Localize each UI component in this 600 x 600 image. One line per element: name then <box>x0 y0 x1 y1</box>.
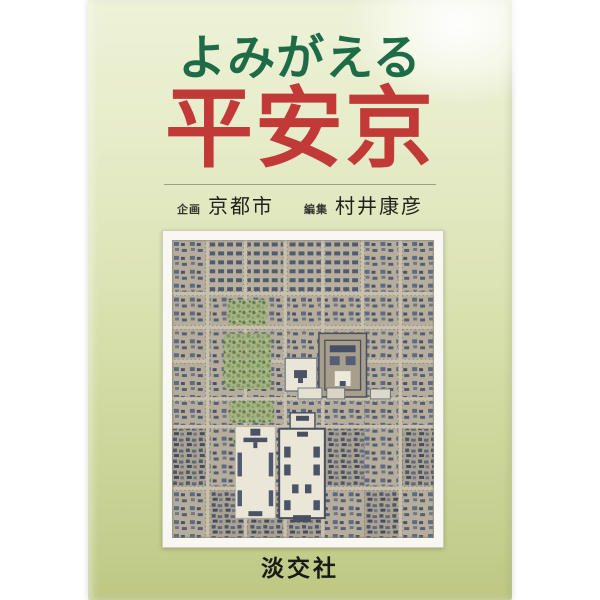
title-divider-rule <box>164 184 436 185</box>
map-burakuin-white-compound <box>236 427 276 518</box>
credits-line: 企画京都市 編集村井康彦 <box>88 190 512 219</box>
credit-name-planning: 京都市 <box>208 196 274 218</box>
title-line2-kanji: 平安京 <box>88 84 512 177</box>
title-line1-kana: よみがえる <box>88 33 512 86</box>
heiankyo-model-aerial-photo <box>172 240 434 538</box>
publisher-name: 淡交社 <box>88 549 512 583</box>
credit-planning: 企画京都市 <box>177 190 274 219</box>
map-white-halls-row <box>298 388 390 399</box>
book-cover: よみがえる 平安京 企画京都市 編集村井康彦 <box>88 0 512 600</box>
credit-role-editing: 編集 <box>304 204 328 216</box>
map-palace-compound-dark <box>319 333 367 397</box>
map-chodoin-white-compound <box>279 413 325 522</box>
credit-name-editing: 村井康彦 <box>335 196 423 218</box>
map-small-white-compound <box>285 358 317 391</box>
credit-editing: 編集村井康彦 <box>304 190 423 219</box>
credit-role-planning: 企画 <box>177 204 201 216</box>
model-photo-frame <box>162 230 444 548</box>
